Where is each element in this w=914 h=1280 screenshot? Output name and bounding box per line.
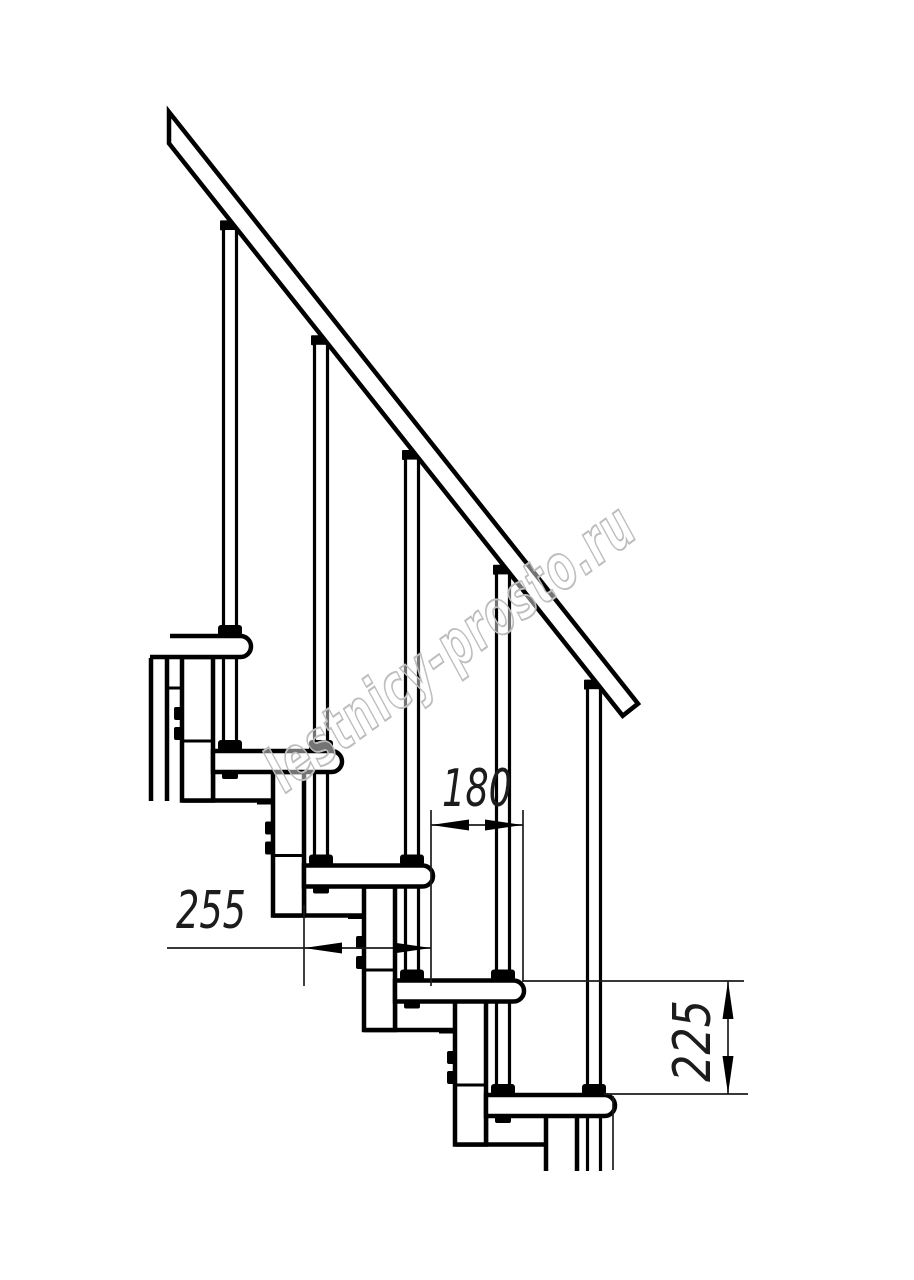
dimension-225: 225 <box>522 981 748 1170</box>
baluster-tube-lower <box>497 1002 510 1096</box>
dimension-label-rise: 225 <box>663 1000 723 1082</box>
baluster-rod <box>309 335 333 893</box>
staircase-drawing-canvas: 180 255 225 lestnicy-prosto.ru <box>0 0 914 1280</box>
tread-5 <box>486 1095 615 1116</box>
baluster-tube-upper <box>224 228 237 636</box>
baluster-tube-upper <box>315 343 328 751</box>
module-4-neck <box>455 1001 486 1145</box>
tread-3 <box>304 866 433 887</box>
arrowhead-down <box>723 1056 734 1094</box>
tread-4 <box>395 981 524 1002</box>
module-1-neck <box>182 657 213 801</box>
arrowhead-left <box>431 820 469 831</box>
dimension-label-depth: 255 <box>176 881 246 941</box>
module-3-neck <box>364 887 395 1031</box>
baluster-tube-lower <box>406 887 419 981</box>
baluster-tube-lower <box>224 657 237 751</box>
baluster-rod <box>218 220 242 779</box>
arrowhead-up <box>723 981 734 1019</box>
baluster-rod <box>400 450 424 1009</box>
upper-flight-cut-lines <box>151 638 167 801</box>
staircase-drawing-page: 180 255 225 lestnicy-prosto.ru <box>0 0 914 1280</box>
baluster-tube-upper <box>588 688 601 1095</box>
tread-1-fill <box>150 636 251 657</box>
arrowhead-left <box>304 943 342 954</box>
dimension-label-run: 180 <box>442 759 512 819</box>
